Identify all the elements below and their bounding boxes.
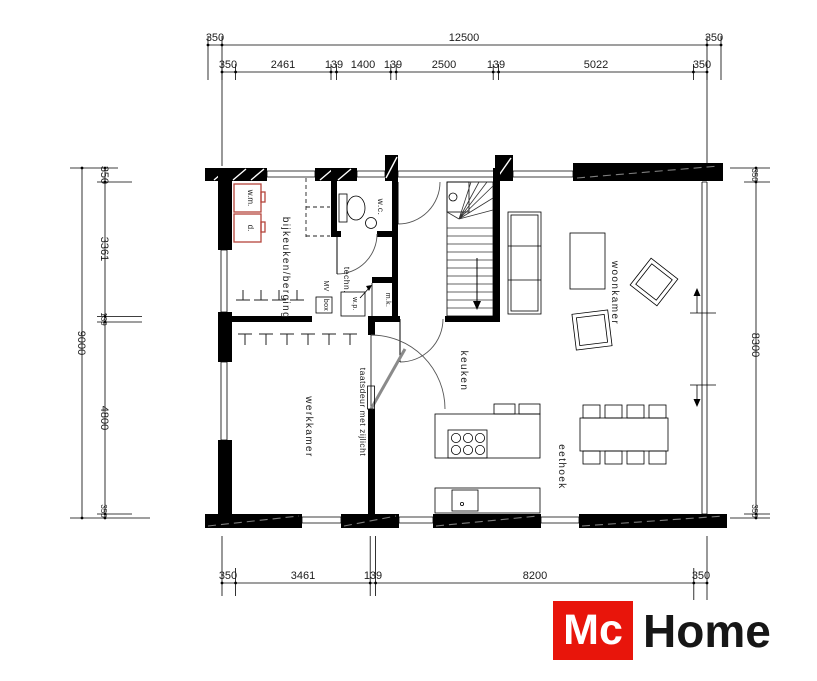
- sliding-door-arrows: [690, 288, 716, 407]
- label-wm: w.m.: [246, 189, 255, 206]
- label-mv: MV: [322, 280, 329, 291]
- window: [221, 250, 227, 312]
- logo-home-text: Home: [643, 604, 771, 658]
- kitchen: [435, 404, 540, 513]
- bar-stool: [494, 404, 515, 414]
- room-label-werkkamer: werkkamer: [303, 395, 314, 458]
- note-pivot-door: taatsdeur met zijlicht: [358, 368, 368, 457]
- window: [267, 171, 315, 177]
- armchair-inner: [576, 314, 607, 345]
- dim-label: 350: [750, 168, 759, 182]
- dim-label: 8200: [523, 570, 547, 582]
- kitchen-counter: [435, 488, 540, 513]
- wall-stairs-right: [493, 168, 500, 322]
- dim-label: 350: [692, 570, 710, 582]
- wall-stairs-bottom: [445, 316, 500, 322]
- room-label-bijkeuken: bijkeuken/berging: [280, 217, 291, 319]
- armchair-inner: [636, 264, 672, 300]
- brand-logo: Mc Home: [553, 601, 771, 660]
- dim-top: 350 12500 350 350 2461 139 1400 139 2500…: [206, 32, 723, 166]
- arrow-up-icon: [694, 288, 701, 296]
- dim-label: 139: [364, 570, 382, 582]
- dim-label: 350: [219, 59, 237, 71]
- dim-label: 350: [206, 32, 224, 44]
- wall-bijkeuken-werkkamer: [218, 316, 312, 322]
- dim-label: 350: [705, 32, 723, 44]
- room-label-eethoek: eethoek: [556, 444, 567, 489]
- dim-label: 139: [384, 59, 402, 71]
- dim-label: 2500: [432, 59, 456, 71]
- sofa-cushion-lines: [508, 246, 541, 280]
- dim-label: 3461: [291, 570, 315, 582]
- dim-label: 139: [487, 59, 505, 71]
- dim-label: 1400: [351, 59, 375, 71]
- kitchen-island: [435, 414, 540, 458]
- label-box: box: [322, 299, 329, 311]
- label-mk: m.k.: [384, 293, 391, 307]
- wall-segment: [218, 168, 232, 250]
- hand-basin: [366, 218, 377, 229]
- bar-stool: [519, 404, 540, 414]
- window: [221, 362, 227, 440]
- label-d: d.: [246, 225, 255, 232]
- toilet-bowl: [347, 196, 365, 220]
- room-label-woonkamer: woonkamer: [609, 260, 620, 325]
- room-label-wc: w.c.: [376, 198, 386, 216]
- stair-landing: [447, 182, 469, 212]
- wall-mk-top: [372, 277, 392, 283]
- dim-bottom: 350 3461 139 8200 350: [219, 536, 710, 600]
- fixtures: w.c. techn. w.p. MV box m.k. w.m. d.: [234, 178, 391, 316]
- sink-drain: [460, 502, 463, 505]
- dim-label: 350: [219, 570, 237, 582]
- arrow-down-icon: [694, 399, 701, 407]
- dim-label: 4800: [98, 406, 110, 430]
- room-label-techn: techn.: [342, 267, 352, 293]
- dim-label: 3361: [98, 237, 110, 261]
- dim-label: 139: [325, 59, 343, 71]
- newel-post: [449, 193, 457, 201]
- wall-hall: [392, 168, 398, 316]
- dim-label: 350: [98, 166, 110, 184]
- sink: [452, 490, 478, 511]
- front-door-swing: [398, 182, 440, 224]
- window: [513, 171, 573, 177]
- dryer-tab: [261, 222, 265, 232]
- dim-label: 139: [99, 312, 108, 326]
- floor-plan-sheet: 350 12500 350 350 2461 139 1400 139 2500…: [0, 0, 817, 681]
- dim-label: 8300: [749, 333, 761, 357]
- dim-label: 350: [750, 504, 759, 518]
- coffee-table: [570, 233, 605, 289]
- cooktop-burners: [451, 433, 484, 454]
- window: [357, 171, 385, 177]
- wall-keuken-left: [368, 316, 375, 335]
- arrow-down-icon: [473, 301, 481, 310]
- logo-mc-mark: Mc: [553, 601, 633, 660]
- wall-keuken-left: [368, 409, 375, 514]
- dim-line: [222, 536, 707, 600]
- wall-wc-bottom: [331, 231, 341, 237]
- washing-machine-tab: [261, 192, 265, 202]
- staircase: [447, 182, 493, 316]
- dining-chairs: [583, 405, 666, 464]
- window: [541, 517, 579, 523]
- slide-indicator: [690, 290, 716, 313]
- dim-label: 2461: [271, 59, 295, 71]
- sofa: [508, 212, 541, 314]
- sofa-inner: [511, 215, 538, 311]
- room-label-keuken: keuken: [458, 351, 469, 392]
- floor-plan-drawing: 350 12500 350 350 2461 139 1400 139 2500…: [0, 0, 817, 681]
- window-front-door-sidelight: [398, 171, 495, 177]
- dim-label: 350: [693, 59, 711, 71]
- interior-walls: [218, 168, 500, 514]
- dim-label: 9000: [75, 331, 87, 355]
- windows: [221, 171, 716, 523]
- closet-marks-bijkeuken: [236, 290, 304, 300]
- wall-wc-left: [331, 168, 337, 237]
- slide-indicator: [690, 385, 716, 404]
- hall-door-swing: [400, 319, 443, 362]
- dim-line: [208, 36, 721, 166]
- exterior-walls: [205, 155, 727, 528]
- dim-left: 9000 350 3361 139 4800 350: [70, 166, 150, 520]
- dining-area: [580, 405, 668, 464]
- dim-right: 350 8300 350: [730, 167, 770, 520]
- label-wp: w.p.: [351, 296, 358, 311]
- glass-facade: [702, 182, 707, 514]
- armchair: [630, 258, 678, 306]
- pivot-door-leaf: [371, 349, 405, 409]
- dim-label: 5022: [584, 59, 608, 71]
- window: [399, 517, 433, 523]
- wall-segment: [433, 514, 541, 528]
- living-room: [508, 212, 678, 350]
- wall-mk-bottom: [375, 316, 400, 322]
- closet-marks-werkkamer: [238, 334, 357, 345]
- cabinet-dashed-outline: [306, 178, 330, 237]
- window: [302, 517, 341, 523]
- dim-label: 350: [99, 504, 108, 518]
- armchair: [572, 310, 612, 350]
- dim-label: 12500: [449, 32, 480, 44]
- straight-treads: [447, 228, 493, 308]
- dining-table: [580, 418, 668, 451]
- toilet-cistern: [339, 194, 347, 222]
- room-labels: bijkeuken/berging keuken woonkamer werkk…: [280, 217, 620, 490]
